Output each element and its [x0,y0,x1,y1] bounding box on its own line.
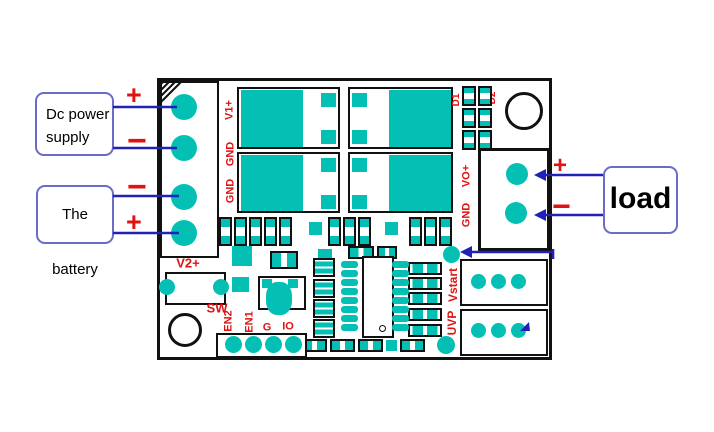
silkscreen-vstart: Vstart [447,268,459,302]
mosfet-4-pin [352,158,367,172]
silkscreen-voplus: VO+ [462,165,473,187]
smd-resistor [424,217,437,246]
vstart-pin [491,274,506,289]
wiring-diagram: V1+ GND GND V2+ D1 D2 VO+ GND SW [0,0,714,432]
smd-resistor [343,217,356,246]
smd-resistor [219,217,232,246]
mounting-hole-top-right [505,92,543,130]
smd-capacitor [408,324,442,337]
uvp-pin [471,323,486,338]
silkscreen-gnd-out: GND [462,203,473,227]
smd-capacitor [313,299,335,318]
smd-resistor [249,217,262,246]
mosfet-4-tab [389,155,451,211]
diode-component [462,130,476,150]
ic-pad [392,306,409,313]
en-pin-io [285,336,302,353]
smd-pad [309,222,322,235]
vstart-pin [511,274,526,289]
silkscreen-gnd1: GND [226,142,237,166]
load-label: load [610,182,672,215]
smd-resistor [358,217,371,246]
input-pin-v2plus [171,220,197,246]
mosfet-3-pin [321,158,336,172]
silkscreen-en2: EN2 [224,310,235,331]
switch-pin [159,279,175,295]
ic-pad [392,315,409,322]
output-pin-voplus [506,163,528,185]
smd-resistor [400,339,425,352]
ic-pad [392,270,409,277]
ic-pad [392,279,409,286]
smd-pad [386,340,397,351]
vstart-pin [471,274,486,289]
mosfet-1-pin [321,93,336,107]
uvp-pad [437,336,455,354]
minus-sign-dc: − [127,124,147,158]
smd-resistor [330,339,355,352]
mounting-hole-bottom-left [168,313,202,347]
dc-power-supply-box: Dc power supply [35,92,114,156]
smd-capacitor [313,279,335,298]
ic-pad [341,297,358,304]
silkscreen-v1plus: V1+ [225,100,236,120]
plus-sign-dc: + [126,82,142,109]
diode-component [462,86,476,106]
smd-capacitor [408,292,442,305]
switch-pin [213,279,229,295]
smd-pad [385,222,398,235]
mosfet-1-tab [241,90,303,147]
mosfet-2-pin [352,130,367,144]
plus-sign-load: + [553,154,567,178]
smd-capacitor [408,277,442,290]
ic-pad [392,324,409,331]
ic-pad [341,324,358,331]
output-pin-gnd [505,202,527,224]
smd-capacitor [270,251,298,269]
load-box: load [603,166,678,234]
silkscreen-en1: EN1 [245,311,256,332]
plus-sign-battery: + [126,209,142,236]
uvp-pin [491,323,506,338]
battery-label: The battery [52,206,98,278]
smd-capacitor [408,262,442,275]
smd-resistor [439,217,452,246]
en-pin-en2 [225,336,242,353]
smd-resistor [409,217,422,246]
smd-resistor [234,217,247,246]
input-pin-gnd1 [171,135,197,161]
silkscreen-d1: D1 [452,94,462,107]
ic-pad [392,297,409,304]
smd-resistor [328,217,341,246]
vstart-pad [443,246,460,263]
silkscreen-gnd2: GND [226,179,237,203]
smd-capacitor [313,319,335,338]
silkscreen-uvp: UVP [446,311,458,336]
smd-pad [232,246,252,266]
mosfet-4-pin [352,195,367,209]
dc-power-supply-label: Dc power supply [46,106,109,146]
battery-box: The battery [36,185,114,244]
ic-pad [341,315,358,322]
ic-pad [392,288,409,295]
ic-pad [341,270,358,277]
minus-sign-load: − [552,190,571,222]
en-pin-en1 [245,336,262,353]
ic-pad [392,261,409,268]
smd-pad [232,277,249,292]
diode-component [478,130,492,150]
mosfet-2-tab [389,90,451,147]
minus-sign-battery: − [127,170,147,204]
smd-capacitor [313,258,335,277]
ic-pad [341,288,358,295]
ic-pin1-dot [379,325,386,332]
ic-pad [341,279,358,286]
smd-resistor [279,217,292,246]
mosfet-3-pin [321,195,336,209]
silkscreen-g: G [263,323,272,334]
input-pin-gnd2 [171,184,197,210]
mosfet-2-pin [352,93,367,107]
transistor-tab [266,282,292,315]
en-pin-g [265,336,282,353]
uvp-pin [511,323,526,338]
smd-capacitor [408,308,442,321]
ic-pad [341,306,358,313]
smd-resistor [358,339,383,352]
diode-component [478,108,492,128]
input-pin-v1plus [171,94,197,120]
diode-component [478,86,492,106]
ic-body [362,256,394,338]
silkscreen-v2plus: V2+ [176,257,200,270]
ic-pad [341,261,358,268]
mosfet-1-pin [321,130,336,144]
diode-component [462,108,476,128]
mosfet-3-tab [241,155,303,211]
smd-resistor [264,217,277,246]
silkscreen-io: IO [282,322,294,333]
